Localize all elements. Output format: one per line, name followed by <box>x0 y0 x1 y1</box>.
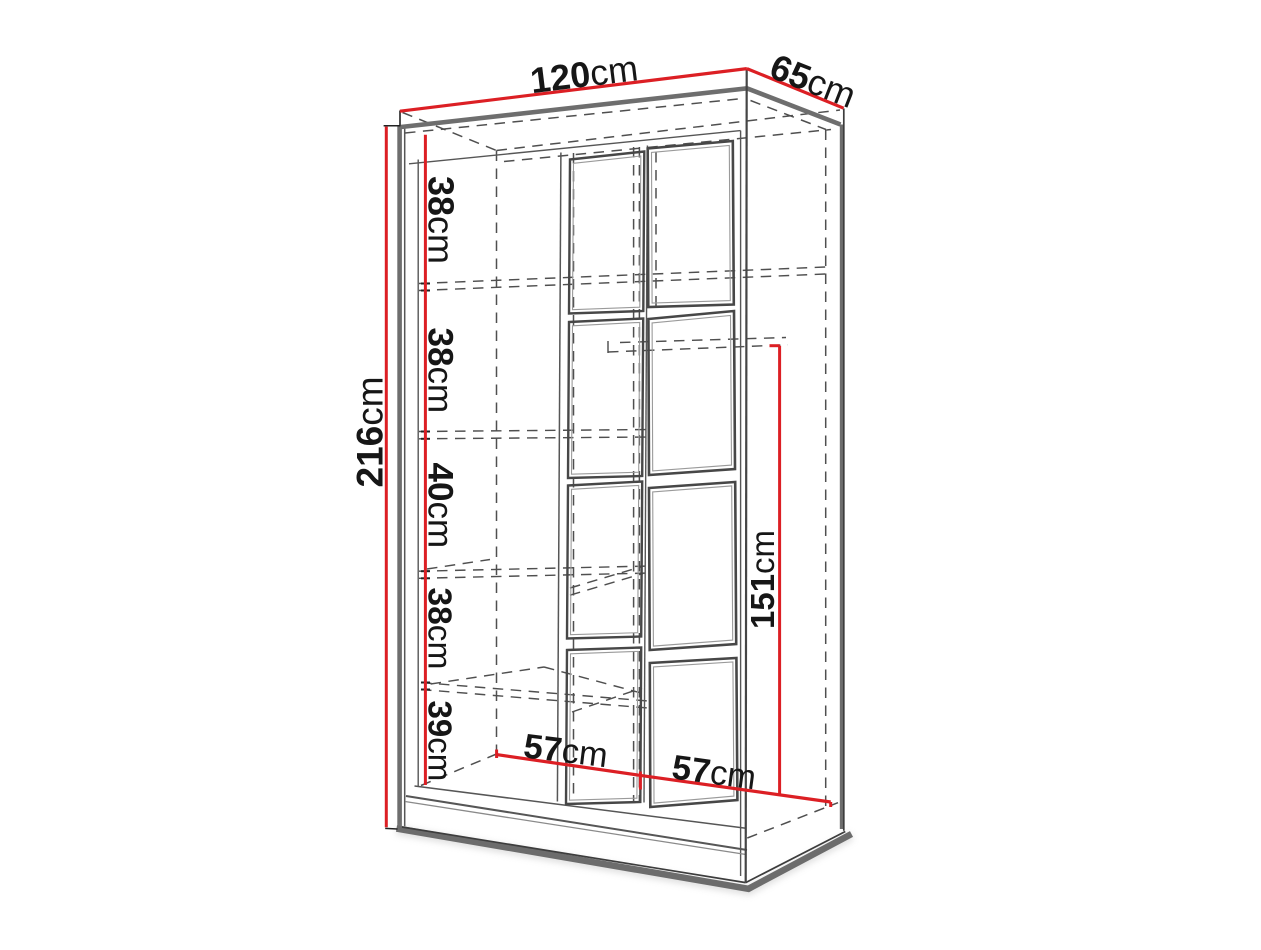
svg-text:38cm: 38cm <box>420 328 459 414</box>
svg-text:39cm: 39cm <box>421 701 458 782</box>
svg-text:40cm: 40cm <box>421 463 460 549</box>
svg-text:151cm: 151cm <box>744 530 781 629</box>
svg-text:38cm: 38cm <box>420 588 457 670</box>
svg-text:216cm: 216cm <box>349 376 390 487</box>
svg-text:38cm: 38cm <box>420 176 461 264</box>
